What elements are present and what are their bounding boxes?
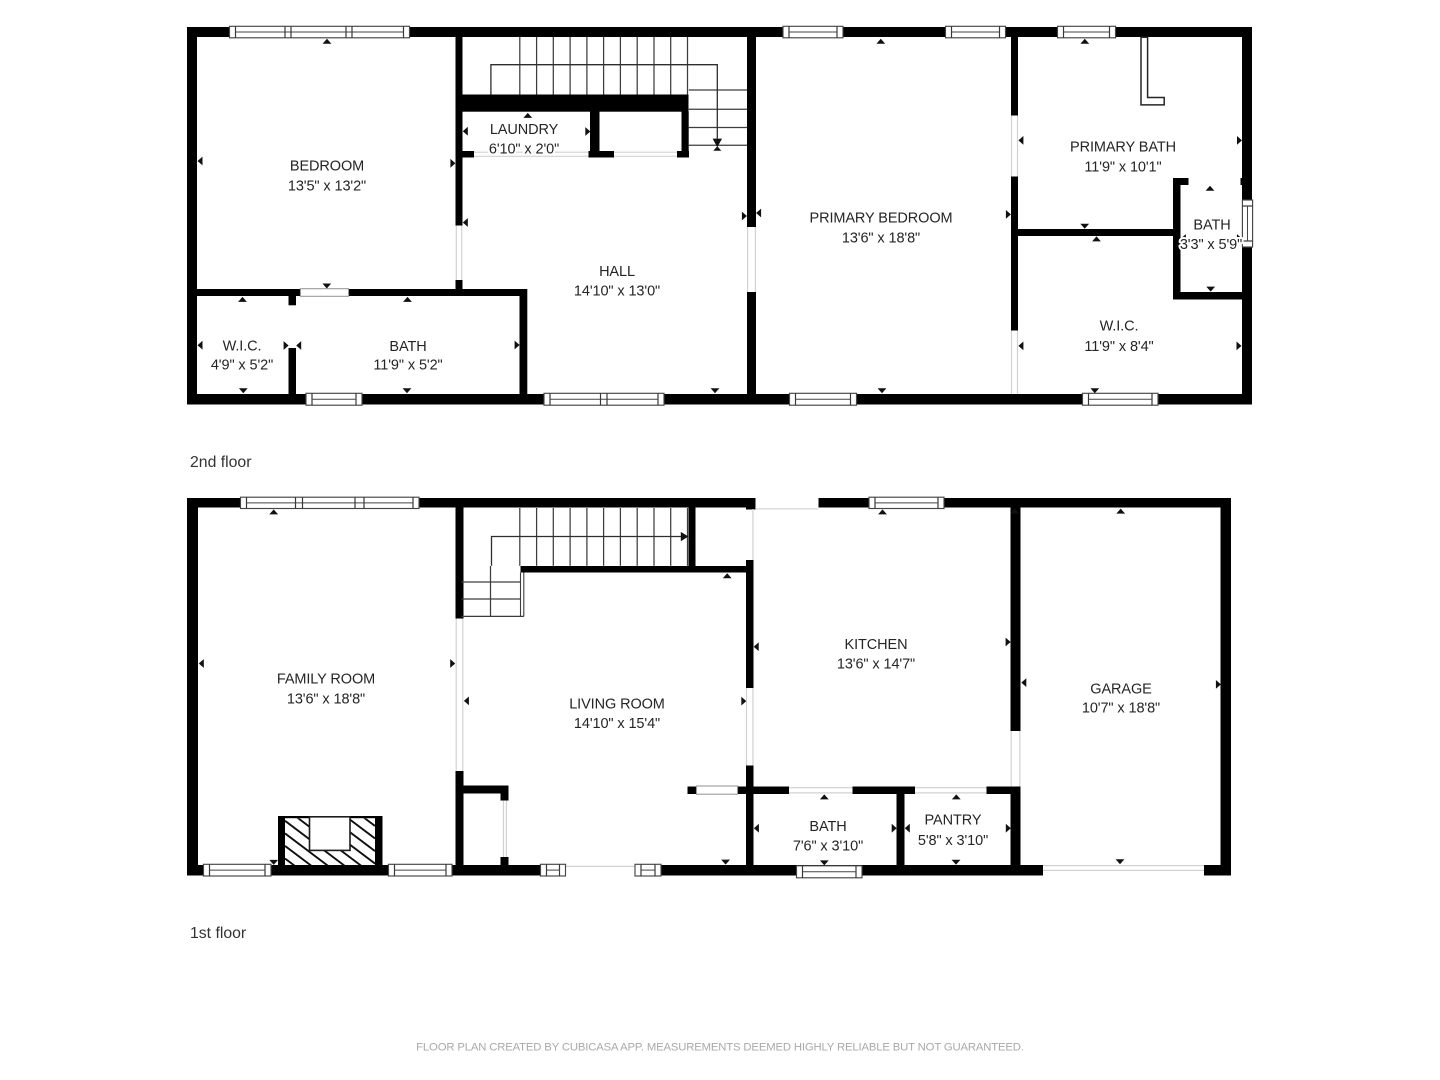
svg-text:7'6" x 3'10": 7'6" x 3'10"	[793, 838, 863, 854]
svg-text:FLOOR PLAN CREATED BY CUBICASA: FLOOR PLAN CREATED BY CUBICASA APP. MEAS…	[416, 1042, 1024, 1054]
svg-text:KITCHEN: KITCHEN	[845, 637, 908, 653]
svg-text:13'6" x 18'8": 13'6" x 18'8"	[287, 691, 365, 707]
svg-text:11'9" x 10'1": 11'9" x 10'1"	[1084, 159, 1161, 175]
svg-text:W.I.C.: W.I.C.	[223, 339, 262, 355]
svg-text:PRIMARY BATH: PRIMARY BATH	[1070, 140, 1176, 156]
svg-text:13'6" x 14'7": 13'6" x 14'7"	[837, 656, 915, 672]
svg-text:PANTRY: PANTRY	[925, 813, 982, 829]
svg-text:BEDROOM: BEDROOM	[290, 159, 364, 175]
svg-text:3'3" x 5'9": 3'3" x 5'9"	[1180, 237, 1242, 253]
svg-text:5'8" x 3'10": 5'8" x 3'10"	[918, 833, 988, 849]
svg-text:4'9" x 5'2": 4'9" x 5'2"	[211, 358, 273, 374]
svg-text:10'7" x 18'8": 10'7" x 18'8"	[1082, 700, 1160, 716]
svg-text:11'9" x 5'2": 11'9" x 5'2"	[373, 358, 442, 374]
svg-text:6'10" x 2'0": 6'10" x 2'0"	[489, 142, 559, 158]
svg-text:13'6" x 18'8": 13'6" x 18'8"	[842, 230, 920, 246]
svg-text:11'9" x 8'4": 11'9" x 8'4"	[1084, 339, 1153, 355]
svg-text:BATH: BATH	[809, 819, 846, 835]
svg-text:13'5" x 13'2": 13'5" x 13'2"	[288, 178, 366, 194]
svg-text:FAMILY ROOM: FAMILY ROOM	[277, 672, 375, 688]
svg-text:BATH: BATH	[389, 339, 426, 355]
svg-text:LAUNDRY: LAUNDRY	[490, 122, 559, 138]
svg-text:LIVING ROOM: LIVING ROOM	[569, 697, 665, 713]
svg-text:1st floor: 1st floor	[190, 925, 246, 942]
svg-text:HALL: HALL	[599, 264, 635, 280]
svg-text:PRIMARY BEDROOM: PRIMARY BEDROOM	[810, 211, 953, 227]
svg-text:W.I.C.: W.I.C.	[1100, 319, 1139, 335]
svg-text:2nd floor: 2nd floor	[190, 454, 251, 471]
svg-text:14'10" x 13'0": 14'10" x 13'0"	[574, 283, 660, 299]
svg-text:14'10" x 15'4": 14'10" x 15'4"	[574, 716, 660, 732]
svg-text:BATH: BATH	[1193, 218, 1230, 234]
svg-text:GARAGE: GARAGE	[1090, 681, 1152, 697]
